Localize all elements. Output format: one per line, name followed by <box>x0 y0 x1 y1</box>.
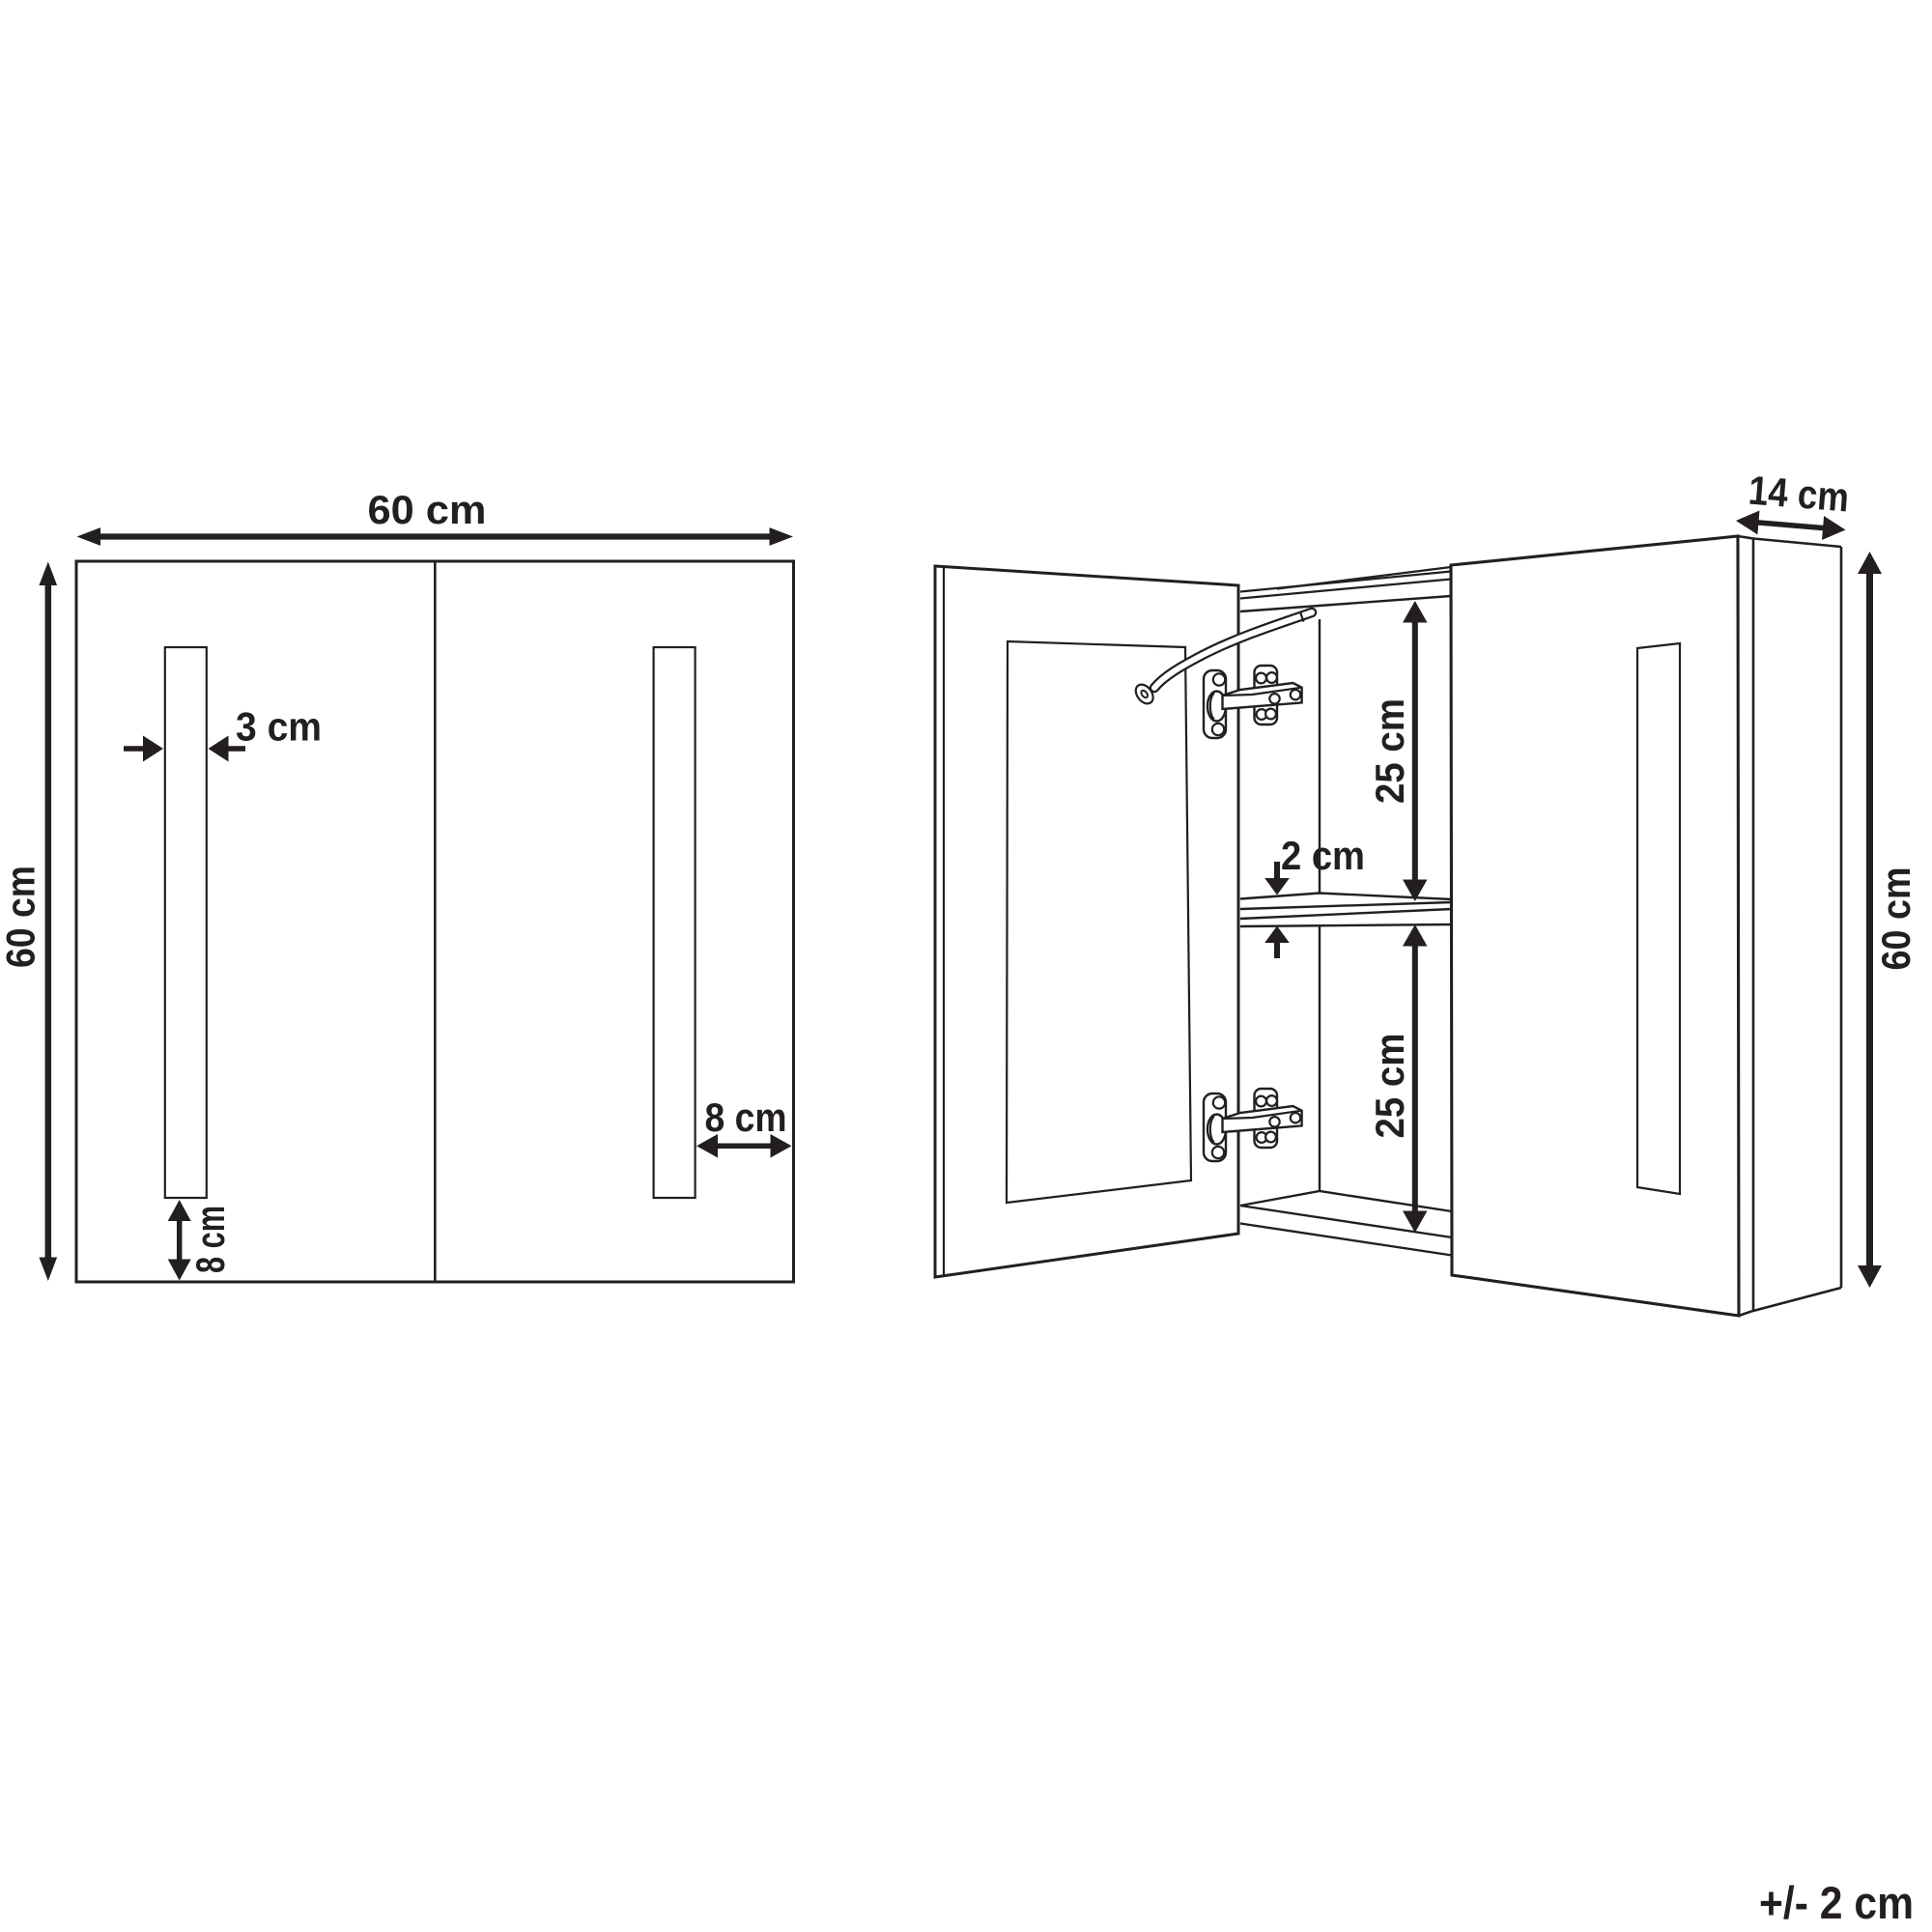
svg-text:+/- 2 cm: +/- 2 cm <box>1759 1877 1914 1928</box>
svg-text:25 cm: 25 cm <box>1367 698 1412 804</box>
svg-text:60 cm: 60 cm <box>1873 867 1918 971</box>
svg-text:25 cm: 25 cm <box>1367 1034 1412 1139</box>
svg-text:60 cm: 60 cm <box>368 487 487 532</box>
svg-text:8 cm: 8 cm <box>187 1206 233 1273</box>
svg-text:60 cm: 60 cm <box>0 866 43 968</box>
svg-text:3 cm: 3 cm <box>236 704 322 750</box>
svg-text:14 cm: 14 cm <box>1747 468 1850 521</box>
svg-text:2 cm: 2 cm <box>1281 833 1365 878</box>
svg-text:8 cm: 8 cm <box>705 1094 787 1140</box>
